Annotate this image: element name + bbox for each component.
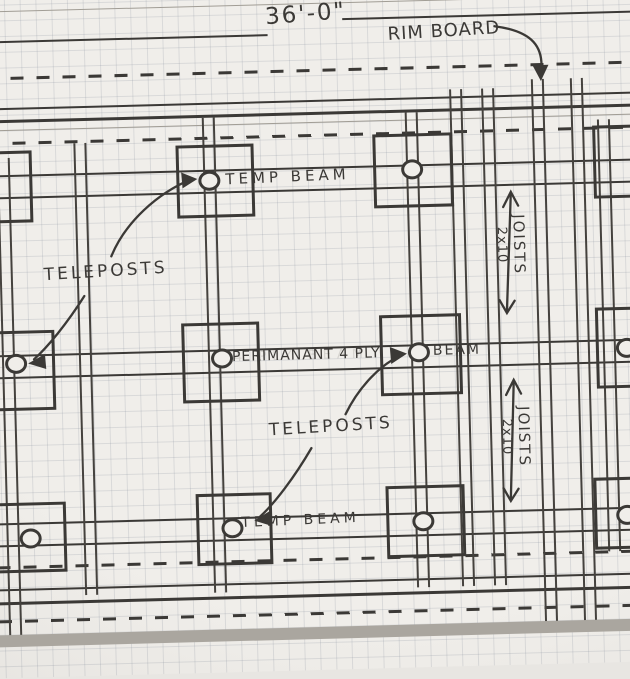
dimension-label: 36'-0" (264, 0, 347, 30)
permanent-beam-label-2: BEAM (433, 342, 482, 359)
rim-board-label: RIM BOARD (387, 17, 501, 45)
joists-upper-line1: JOISTS (508, 184, 530, 304)
rim-board-arrow (494, 25, 541, 76)
dashed-line-top (0, 60, 630, 81)
footing-square (592, 124, 630, 199)
joists-lower-line1: JOISTS (513, 376, 535, 496)
joist-pair-2 (73, 143, 98, 595)
graph-paper-sheet: 36'-0" RIM BOARD TEMP BEAM TELEPOSTS 4 P… (0, 0, 630, 679)
teleposts-upper-label: TELEPOSTS (43, 258, 168, 286)
footing-square (0, 150, 33, 224)
joists-upper-line2: 2x10 (492, 185, 511, 305)
permanent-beam-label: PERIMANANT 4 PLY (232, 345, 381, 365)
joists-lower-line2: 2x10 (497, 377, 516, 497)
teleposts-lower-label: TELEPOSTS (268, 413, 393, 441)
paper-edge-strip (0, 618, 630, 648)
joists-lower-label: JOISTS 2x10 (488, 376, 535, 497)
joists-upper-label: JOISTS 2x10 (483, 184, 530, 305)
dimension-line-left (0, 34, 268, 44)
